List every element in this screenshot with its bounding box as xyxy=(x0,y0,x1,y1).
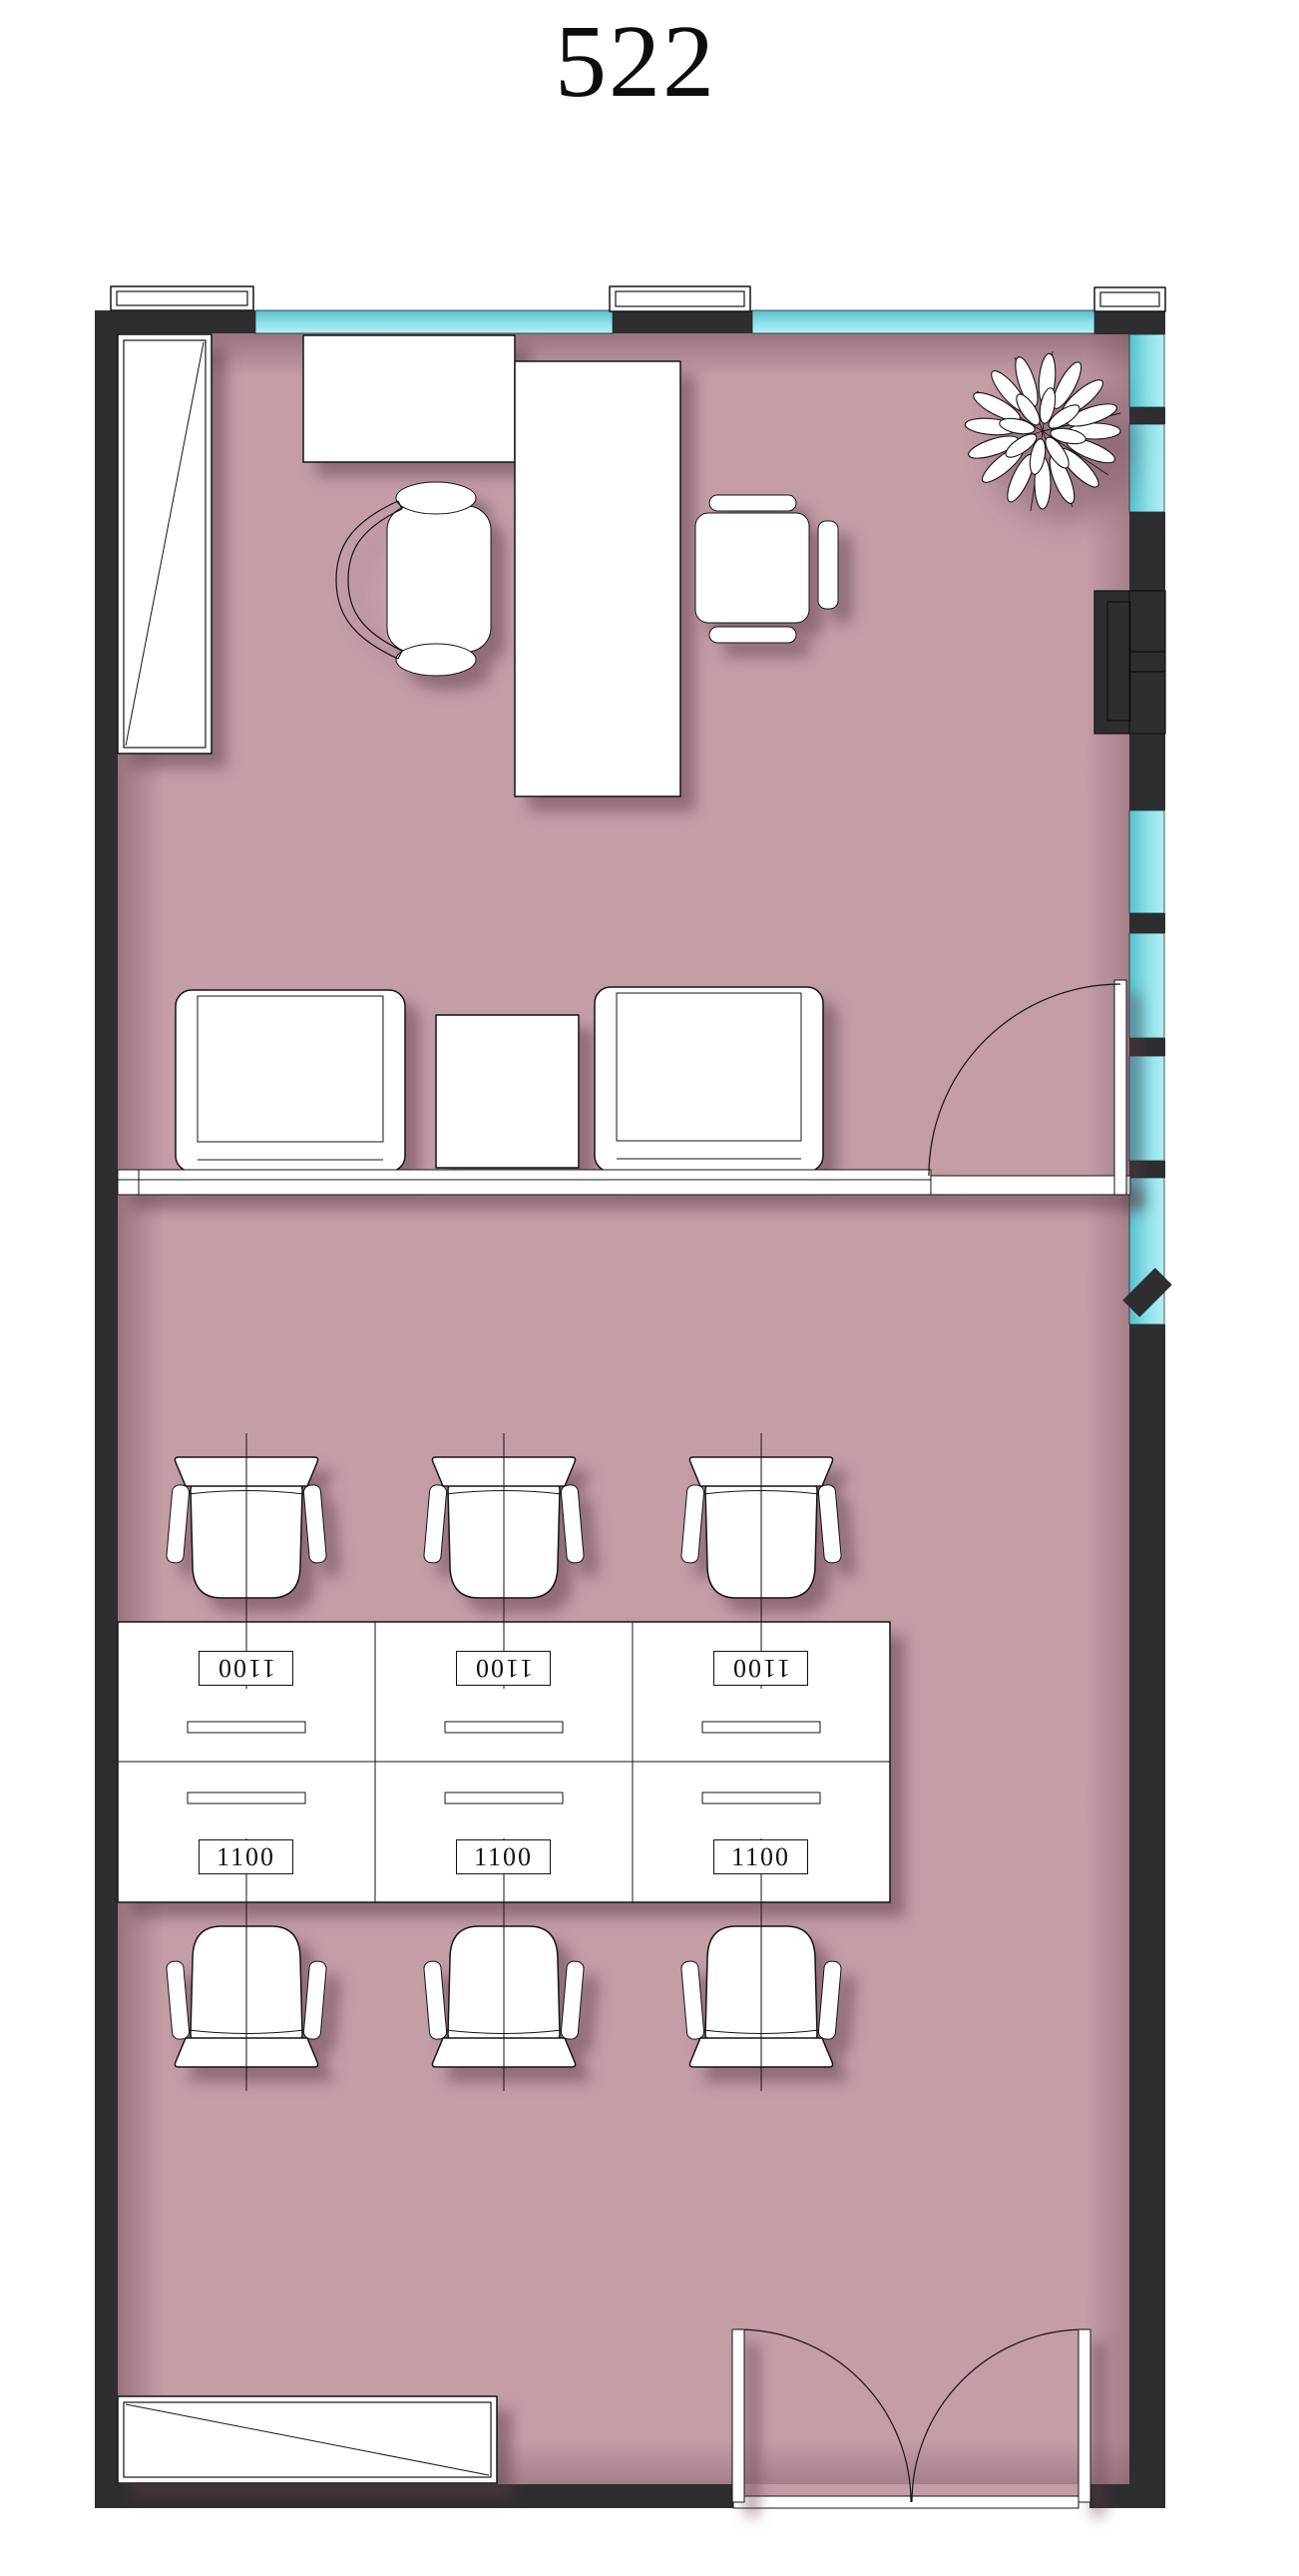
window-sill-3 xyxy=(1094,287,1165,311)
desk-slot xyxy=(188,1793,305,1803)
window-right-3 xyxy=(1129,810,1164,913)
desk-label: 1100 xyxy=(456,1651,551,1686)
low-cabinet xyxy=(118,2396,497,2483)
wall-top-right-pier xyxy=(1094,310,1165,334)
wall-bottom-left xyxy=(95,2484,733,2508)
wall-right-segment-2 xyxy=(1129,1324,1165,2484)
door-threshold-floor xyxy=(733,2484,1079,2497)
window-top-2 xyxy=(752,310,1094,333)
desk-slot xyxy=(445,1722,563,1733)
desk-label: 1100 xyxy=(456,1839,551,1874)
desk-slot xyxy=(702,1722,820,1733)
wall-top-mullion xyxy=(613,310,752,333)
window-sill-1 xyxy=(111,286,253,310)
wall-left xyxy=(95,310,118,2508)
desk-main xyxy=(515,361,680,796)
desk-label: 1100 xyxy=(713,1839,808,1874)
desk-label: 1100 xyxy=(713,1651,808,1686)
tall-cabinet xyxy=(118,334,212,754)
desk-slot xyxy=(445,1793,563,1803)
entrance-threshold xyxy=(733,2496,1079,2508)
window-right-4 xyxy=(1129,933,1164,1038)
inner-door-leaf xyxy=(1114,980,1126,1195)
floorplan-drawing xyxy=(0,0,1299,2576)
sofa-left xyxy=(176,990,405,1172)
floorplan-page: 522 xyxy=(0,0,1299,2576)
window-right-2 xyxy=(1129,424,1164,512)
window-sills xyxy=(111,286,1165,311)
partition-door-threshold xyxy=(931,1176,1130,1195)
wall-bottom-right xyxy=(1089,2484,1165,2508)
wall-top-left-pier xyxy=(95,310,255,333)
wall-right-mullion-2 xyxy=(1129,913,1165,933)
window-top-1 xyxy=(255,310,613,333)
wall-right-mullion-4 xyxy=(1129,1161,1165,1178)
entrance-door-leaf-right xyxy=(1079,2329,1090,2502)
wall-right-mullion-3 xyxy=(1129,1038,1165,1056)
desk-label: 1100 xyxy=(199,1651,293,1686)
window-right-1 xyxy=(1129,334,1164,407)
coffee-table xyxy=(436,1015,579,1168)
entrance-door-leaf-left xyxy=(732,2329,744,2502)
window-sill-2 xyxy=(610,286,750,311)
fan-coil-unit xyxy=(1094,591,1165,734)
wall-right-mullion-1 xyxy=(1129,407,1165,424)
desk-slot xyxy=(702,1793,820,1803)
desk-label: 1100 xyxy=(199,1839,293,1874)
desk-return xyxy=(303,335,515,462)
sofa-right xyxy=(595,987,823,1172)
desk-slot xyxy=(188,1722,305,1733)
window-right-5 xyxy=(1129,1056,1164,1161)
